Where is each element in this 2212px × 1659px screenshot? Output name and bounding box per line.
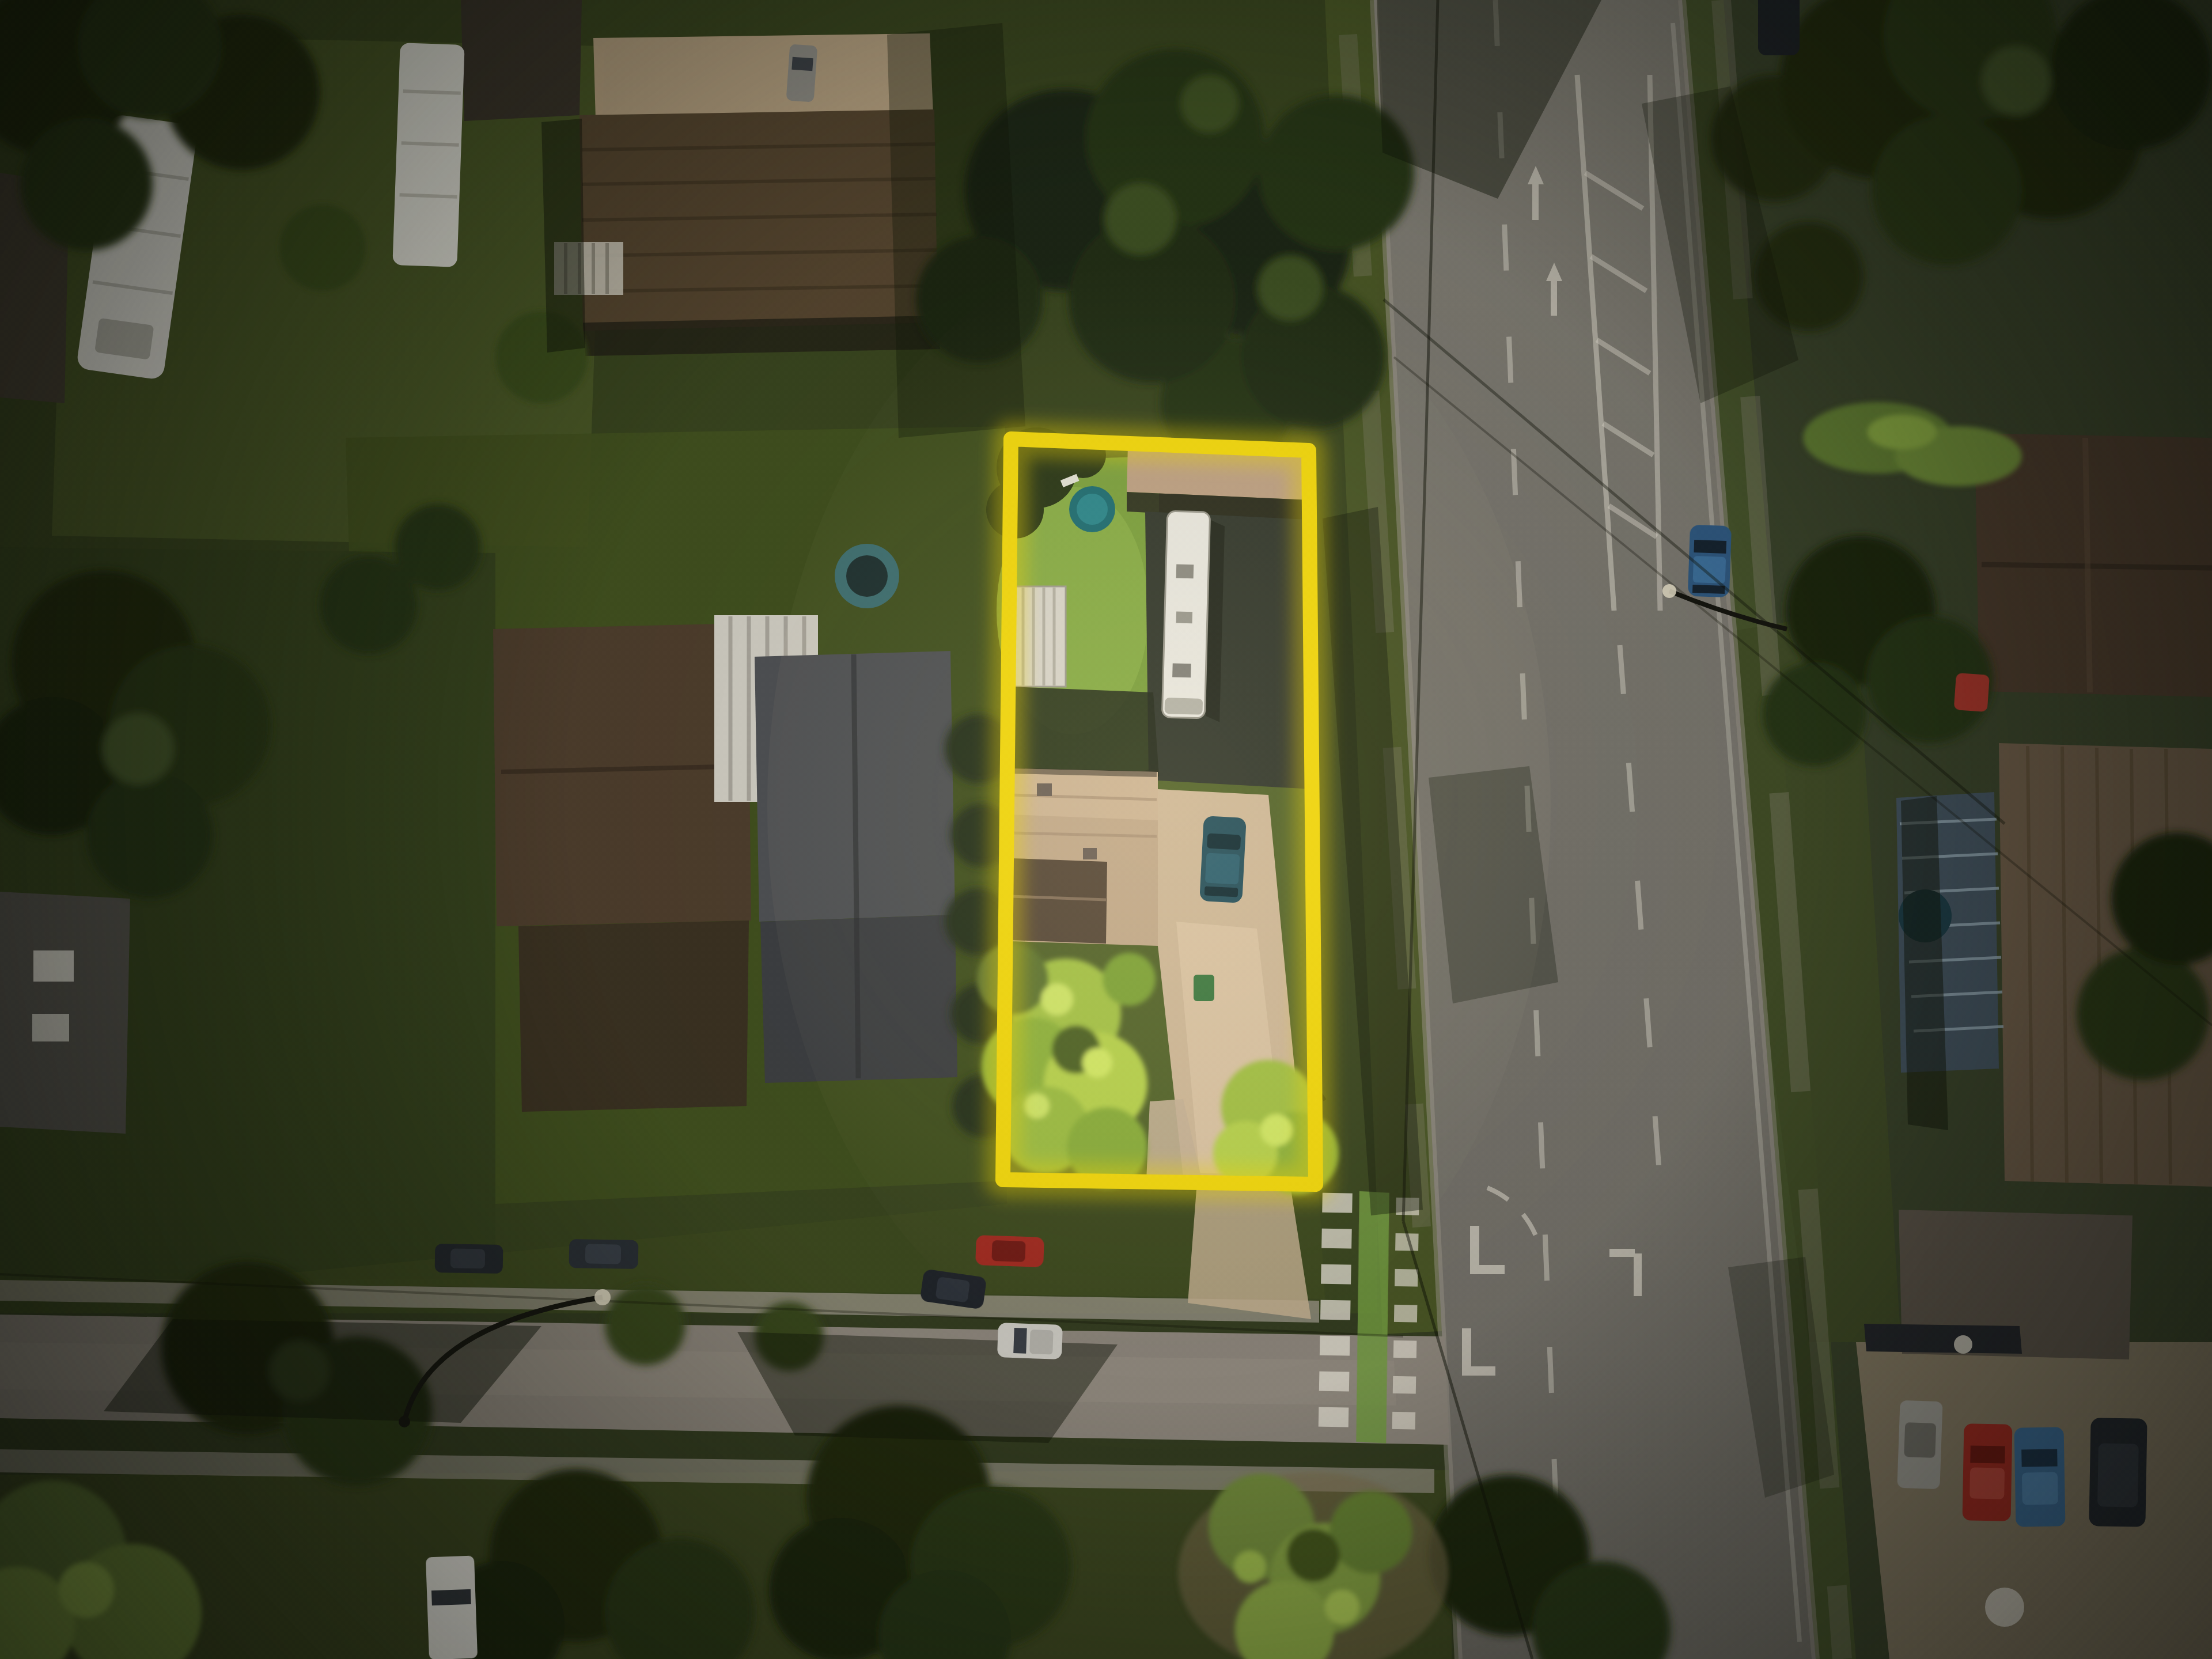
screenshot-root: [0, 0, 2212, 1659]
vignette: [0, 0, 2212, 1659]
aerial-photo: [0, 0, 2212, 1659]
